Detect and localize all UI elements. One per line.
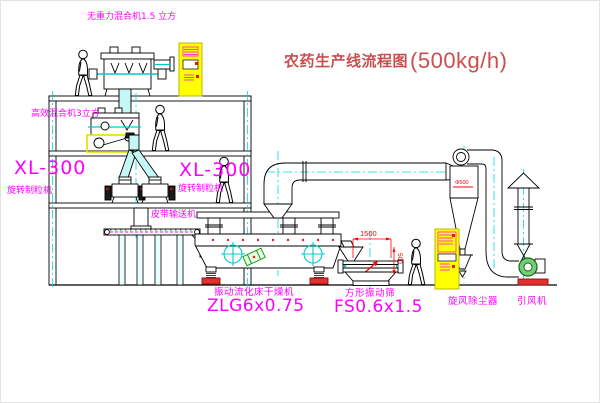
label-dryer-model: ZLG6x0.75 [207, 298, 305, 315]
title-chinese: 农药生产线流程图 [284, 50, 408, 74]
label-gravity-mixer: 无重力混合机1.5 立方 [87, 13, 176, 22]
label-granulator-left-name: 旋转制粒机 [7, 187, 52, 196]
induced-draft-fan-drawing [518, 258, 548, 285]
person-figure [408, 239, 425, 284]
process-flow-diagram: 农药生产线流程图 (500kg/h) 无重力混合机1.5 立方 高效混合机3立方… [0, 0, 600, 403]
fluid-bed-dryer-drawing [195, 212, 357, 284]
label-cyclone: 旋风除尘器 [448, 297, 498, 307]
label-belt-conveyor: 皮带输送机 [151, 211, 196, 220]
label-granulator-right-name: 旋转制粒机 [178, 185, 223, 194]
diagram-title: 农药生产线流程图 (500kg/h) [284, 48, 507, 74]
label-granulator-right-model: XL-300 [179, 161, 251, 180]
label-granulator-left-model: XL-300 [14, 159, 86, 178]
dimension-cyclone-diameter: Φ500 [455, 181, 469, 187]
control-cabinet-top [179, 43, 202, 96]
gravity-mixer-drawing [89, 47, 174, 114]
control-cabinet-ground [435, 229, 459, 289]
dimension-screen-length: 1500 [360, 230, 377, 238]
exhaust-duct [264, 161, 463, 218]
label-high-efficiency-mixer: 高效混合机3立方 [31, 110, 100, 119]
title-capacity: (500kg/h) [410, 48, 507, 74]
dimension-screen-height: 500 [396, 253, 403, 264]
label-fan: 引风机 [517, 297, 547, 307]
person-figure [152, 105, 169, 150]
label-screen-model: FS0.6x1.5 [334, 299, 423, 316]
